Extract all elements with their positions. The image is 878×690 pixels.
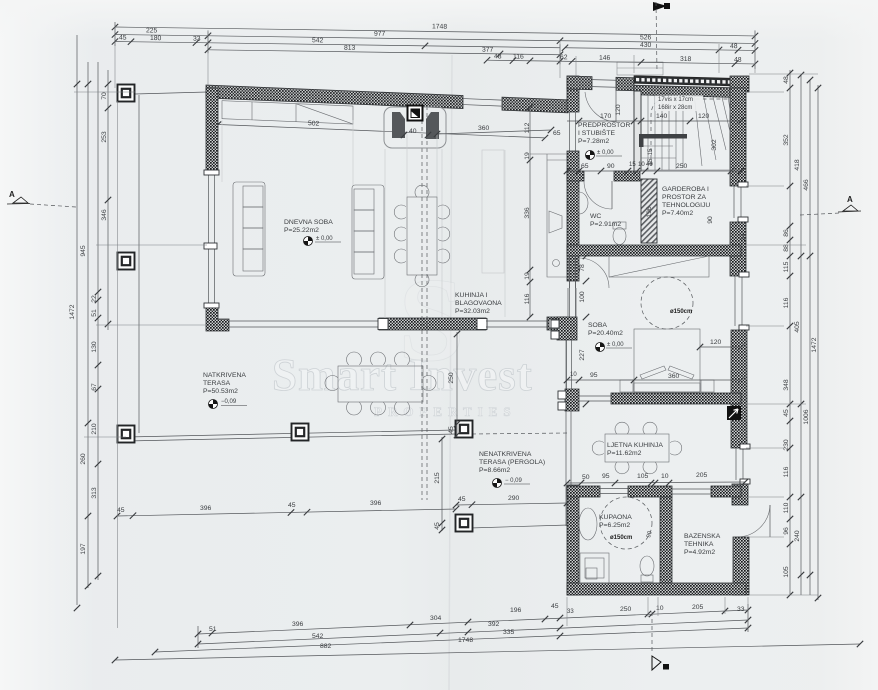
svg-text:33: 33 bbox=[737, 606, 745, 613]
svg-text:10: 10 bbox=[638, 162, 645, 168]
svg-text:TERASA: TERASA bbox=[203, 380, 231, 387]
svg-text:BAZENSKA: BAZENSKA bbox=[684, 533, 721, 540]
svg-text:116: 116 bbox=[513, 54, 524, 61]
svg-text:48: 48 bbox=[730, 43, 738, 50]
svg-text:45: 45 bbox=[551, 603, 559, 610]
svg-text:945: 945 bbox=[80, 245, 87, 257]
svg-text:253: 253 bbox=[101, 131, 108, 143]
svg-text:302: 302 bbox=[711, 139, 718, 151]
svg-text:PROSTOR ZA: PROSTOR ZA bbox=[662, 194, 707, 201]
svg-text:45: 45 bbox=[783, 409, 790, 417]
svg-text:260: 260 bbox=[80, 453, 87, 465]
svg-text:95: 95 bbox=[602, 473, 610, 480]
svg-text:250: 250 bbox=[676, 163, 688, 170]
svg-text:48: 48 bbox=[494, 53, 502, 60]
svg-text:290: 290 bbox=[508, 495, 520, 502]
svg-text:250: 250 bbox=[620, 606, 632, 613]
svg-text:346: 346 bbox=[101, 209, 108, 221]
svg-text:466: 466 bbox=[803, 179, 810, 191]
svg-text:DNEVNA SOBA: DNEVNA SOBA bbox=[284, 219, 333, 226]
svg-text:P=11.62m2: P=11.62m2 bbox=[607, 450, 642, 457]
svg-text:230: 230 bbox=[783, 439, 790, 451]
svg-text:48: 48 bbox=[734, 57, 742, 64]
svg-text:120: 120 bbox=[698, 113, 710, 120]
svg-text:70: 70 bbox=[101, 92, 108, 100]
svg-text:90: 90 bbox=[607, 163, 615, 170]
svg-text:NATKRIVENA: NATKRIVENA bbox=[203, 372, 246, 379]
svg-text:10: 10 bbox=[656, 605, 664, 612]
svg-text:120: 120 bbox=[710, 339, 722, 346]
svg-text:196: 196 bbox=[646, 206, 653, 218]
svg-text:P=25.22m2: P=25.22m2 bbox=[284, 227, 319, 234]
svg-text:51: 51 bbox=[209, 626, 217, 633]
svg-text:130: 130 bbox=[91, 341, 98, 353]
svg-text:90: 90 bbox=[707, 216, 714, 224]
svg-text:1472: 1472 bbox=[811, 337, 818, 352]
svg-text:40: 40 bbox=[409, 128, 417, 135]
svg-text:116: 116 bbox=[524, 293, 531, 304]
svg-text:P=20.40m2: P=20.40m2 bbox=[588, 330, 623, 337]
svg-text:526: 526 bbox=[640, 34, 652, 41]
svg-text:542: 542 bbox=[312, 37, 324, 44]
svg-text:205: 205 bbox=[696, 472, 708, 479]
svg-text:1006: 1006 bbox=[803, 409, 810, 424]
svg-text:882: 882 bbox=[320, 643, 332, 650]
svg-text:19: 19 bbox=[524, 272, 531, 280]
svg-text:360: 360 bbox=[478, 125, 490, 132]
svg-text:10: 10 bbox=[661, 473, 669, 480]
svg-text:TERASA (PERGOLA): TERASA (PERGOLA) bbox=[479, 459, 545, 466]
svg-text:17vis x 17cm: 17vis x 17cm bbox=[658, 97, 693, 103]
svg-text:−0,09: −0,09 bbox=[221, 399, 237, 405]
svg-text:105: 105 bbox=[637, 473, 649, 480]
svg-text:45: 45 bbox=[448, 426, 455, 434]
svg-text:227: 227 bbox=[579, 349, 586, 361]
svg-text:205: 205 bbox=[692, 604, 704, 611]
svg-text:336: 336 bbox=[524, 207, 531, 219]
svg-text:BLAGOVAONA: BLAGOVAONA bbox=[455, 300, 502, 307]
svg-text:250: 250 bbox=[448, 372, 455, 384]
svg-text:405: 405 bbox=[794, 321, 801, 333]
svg-text:22: 22 bbox=[91, 295, 98, 303]
svg-text:542: 542 bbox=[312, 633, 324, 640]
svg-text:168ir x 28cm: 168ir x 28cm bbox=[658, 105, 692, 111]
svg-text:51: 51 bbox=[91, 309, 98, 317]
svg-text:ø150cm: ø150cm bbox=[670, 309, 692, 315]
svg-text:10: 10 bbox=[570, 372, 577, 378]
svg-text:NENATKRIVENA: NENATKRIVENA bbox=[479, 451, 532, 458]
svg-text:112: 112 bbox=[524, 122, 531, 133]
svg-text:335: 335 bbox=[503, 629, 515, 636]
svg-text:396: 396 bbox=[200, 505, 212, 512]
svg-text:210: 210 bbox=[91, 423, 98, 435]
svg-text:P=6.25m2: P=6.25m2 bbox=[599, 522, 630, 529]
svg-text:KUPAONA: KUPAONA bbox=[599, 514, 632, 521]
svg-text:146: 146 bbox=[599, 55, 611, 62]
svg-text:P=8.66m2: P=8.66m2 bbox=[479, 467, 510, 474]
svg-text:TEHNOLOGIJU: TEHNOLOGIJU bbox=[662, 202, 710, 209]
svg-text:34: 34 bbox=[741, 233, 747, 240]
svg-text:A: A bbox=[847, 195, 853, 204]
svg-text:95: 95 bbox=[590, 372, 598, 379]
svg-text:± 0,00: ± 0,00 bbox=[597, 150, 614, 156]
svg-text:304: 304 bbox=[430, 615, 442, 622]
svg-text:430: 430 bbox=[640, 42, 652, 49]
svg-text:418: 418 bbox=[794, 159, 801, 171]
svg-text:348: 348 bbox=[783, 379, 790, 391]
svg-text:15: 15 bbox=[648, 158, 654, 165]
svg-text:GARDEROBA I: GARDEROBA I bbox=[662, 186, 709, 193]
svg-text:ø150cm: ø150cm bbox=[610, 535, 632, 541]
svg-text:45: 45 bbox=[458, 496, 466, 503]
svg-text:110: 110 bbox=[783, 502, 790, 513]
svg-text:502: 502 bbox=[308, 120, 320, 127]
svg-text:45: 45 bbox=[434, 522, 441, 530]
svg-text:SOBA: SOBA bbox=[588, 322, 607, 329]
svg-text:116: 116 bbox=[783, 297, 790, 308]
svg-text:± 0,00: ± 0,00 bbox=[607, 342, 624, 348]
svg-text:33: 33 bbox=[193, 36, 201, 43]
svg-text:813: 813 bbox=[344, 45, 356, 52]
svg-text:48: 48 bbox=[783, 76, 790, 84]
svg-text:392: 392 bbox=[488, 621, 500, 628]
svg-text:240: 240 bbox=[794, 530, 801, 542]
svg-text:P=7.40m2: P=7.40m2 bbox=[662, 210, 693, 217]
svg-text:33: 33 bbox=[567, 609, 574, 615]
svg-text:96: 96 bbox=[783, 527, 790, 535]
svg-text:67: 67 bbox=[91, 383, 98, 391]
svg-text:15: 15 bbox=[648, 148, 654, 155]
svg-text:45: 45 bbox=[288, 502, 296, 509]
svg-text:TEHNIKA: TEHNIKA bbox=[684, 541, 714, 548]
svg-text:65: 65 bbox=[553, 130, 561, 137]
svg-text:P=2.91m2: P=2.91m2 bbox=[590, 221, 621, 228]
svg-text:120: 120 bbox=[615, 104, 622, 116]
svg-text:197: 197 bbox=[80, 543, 87, 555]
svg-text:977: 977 bbox=[374, 31, 386, 38]
svg-text:15: 15 bbox=[629, 162, 636, 168]
svg-text:196: 196 bbox=[510, 607, 522, 614]
svg-text:62: 62 bbox=[560, 54, 568, 61]
svg-text:140: 140 bbox=[656, 113, 668, 120]
svg-text:105: 105 bbox=[783, 566, 790, 578]
svg-text:115: 115 bbox=[783, 261, 790, 272]
svg-text:1472: 1472 bbox=[69, 304, 76, 319]
svg-text:P=50.53m2: P=50.53m2 bbox=[203, 388, 238, 395]
svg-text:396: 396 bbox=[292, 621, 304, 628]
svg-text:360: 360 bbox=[668, 373, 680, 380]
svg-text:352: 352 bbox=[783, 134, 790, 146]
svg-text:45: 45 bbox=[119, 35, 127, 42]
svg-text:50: 50 bbox=[582, 474, 590, 481]
svg-text:P=32.03m2: P=32.03m2 bbox=[455, 308, 490, 315]
svg-text:45: 45 bbox=[117, 507, 125, 514]
svg-text:180: 180 bbox=[150, 35, 162, 42]
svg-text:1748: 1748 bbox=[432, 23, 447, 30]
svg-text:− 0,09: − 0,09 bbox=[505, 478, 523, 484]
svg-text:65: 65 bbox=[581, 163, 589, 170]
svg-text:225: 225 bbox=[146, 27, 158, 34]
svg-text:100: 100 bbox=[579, 291, 586, 303]
svg-text:78: 78 bbox=[579, 264, 586, 272]
svg-text:19: 19 bbox=[524, 152, 531, 160]
svg-text:86: 86 bbox=[783, 229, 790, 237]
svg-text:KUHINJA I: KUHINJA I bbox=[455, 292, 488, 299]
svg-text:P=7.28m2: P=7.28m2 bbox=[578, 138, 609, 145]
svg-text:PREDPROSTOR: PREDPROSTOR bbox=[578, 122, 630, 129]
svg-text:116: 116 bbox=[783, 466, 790, 477]
svg-text:318: 318 bbox=[680, 56, 692, 63]
svg-text:P=4.92m2: P=4.92m2 bbox=[684, 549, 715, 556]
svg-text:377: 377 bbox=[482, 47, 494, 54]
svg-text:WC: WC bbox=[590, 213, 601, 220]
svg-text:170: 170 bbox=[600, 113, 612, 120]
svg-text:396: 396 bbox=[370, 500, 382, 507]
svg-text:215: 215 bbox=[434, 472, 441, 484]
svg-text:A: A bbox=[9, 190, 15, 199]
svg-text:313: 313 bbox=[91, 487, 98, 499]
svg-text:I STUBIŠTE: I STUBIŠTE bbox=[578, 128, 615, 137]
svg-text:1748: 1748 bbox=[458, 637, 473, 644]
svg-text:LJETNA KUHINJA: LJETNA KUHINJA bbox=[607, 442, 663, 449]
svg-text:± 0,00: ± 0,00 bbox=[316, 236, 333, 242]
